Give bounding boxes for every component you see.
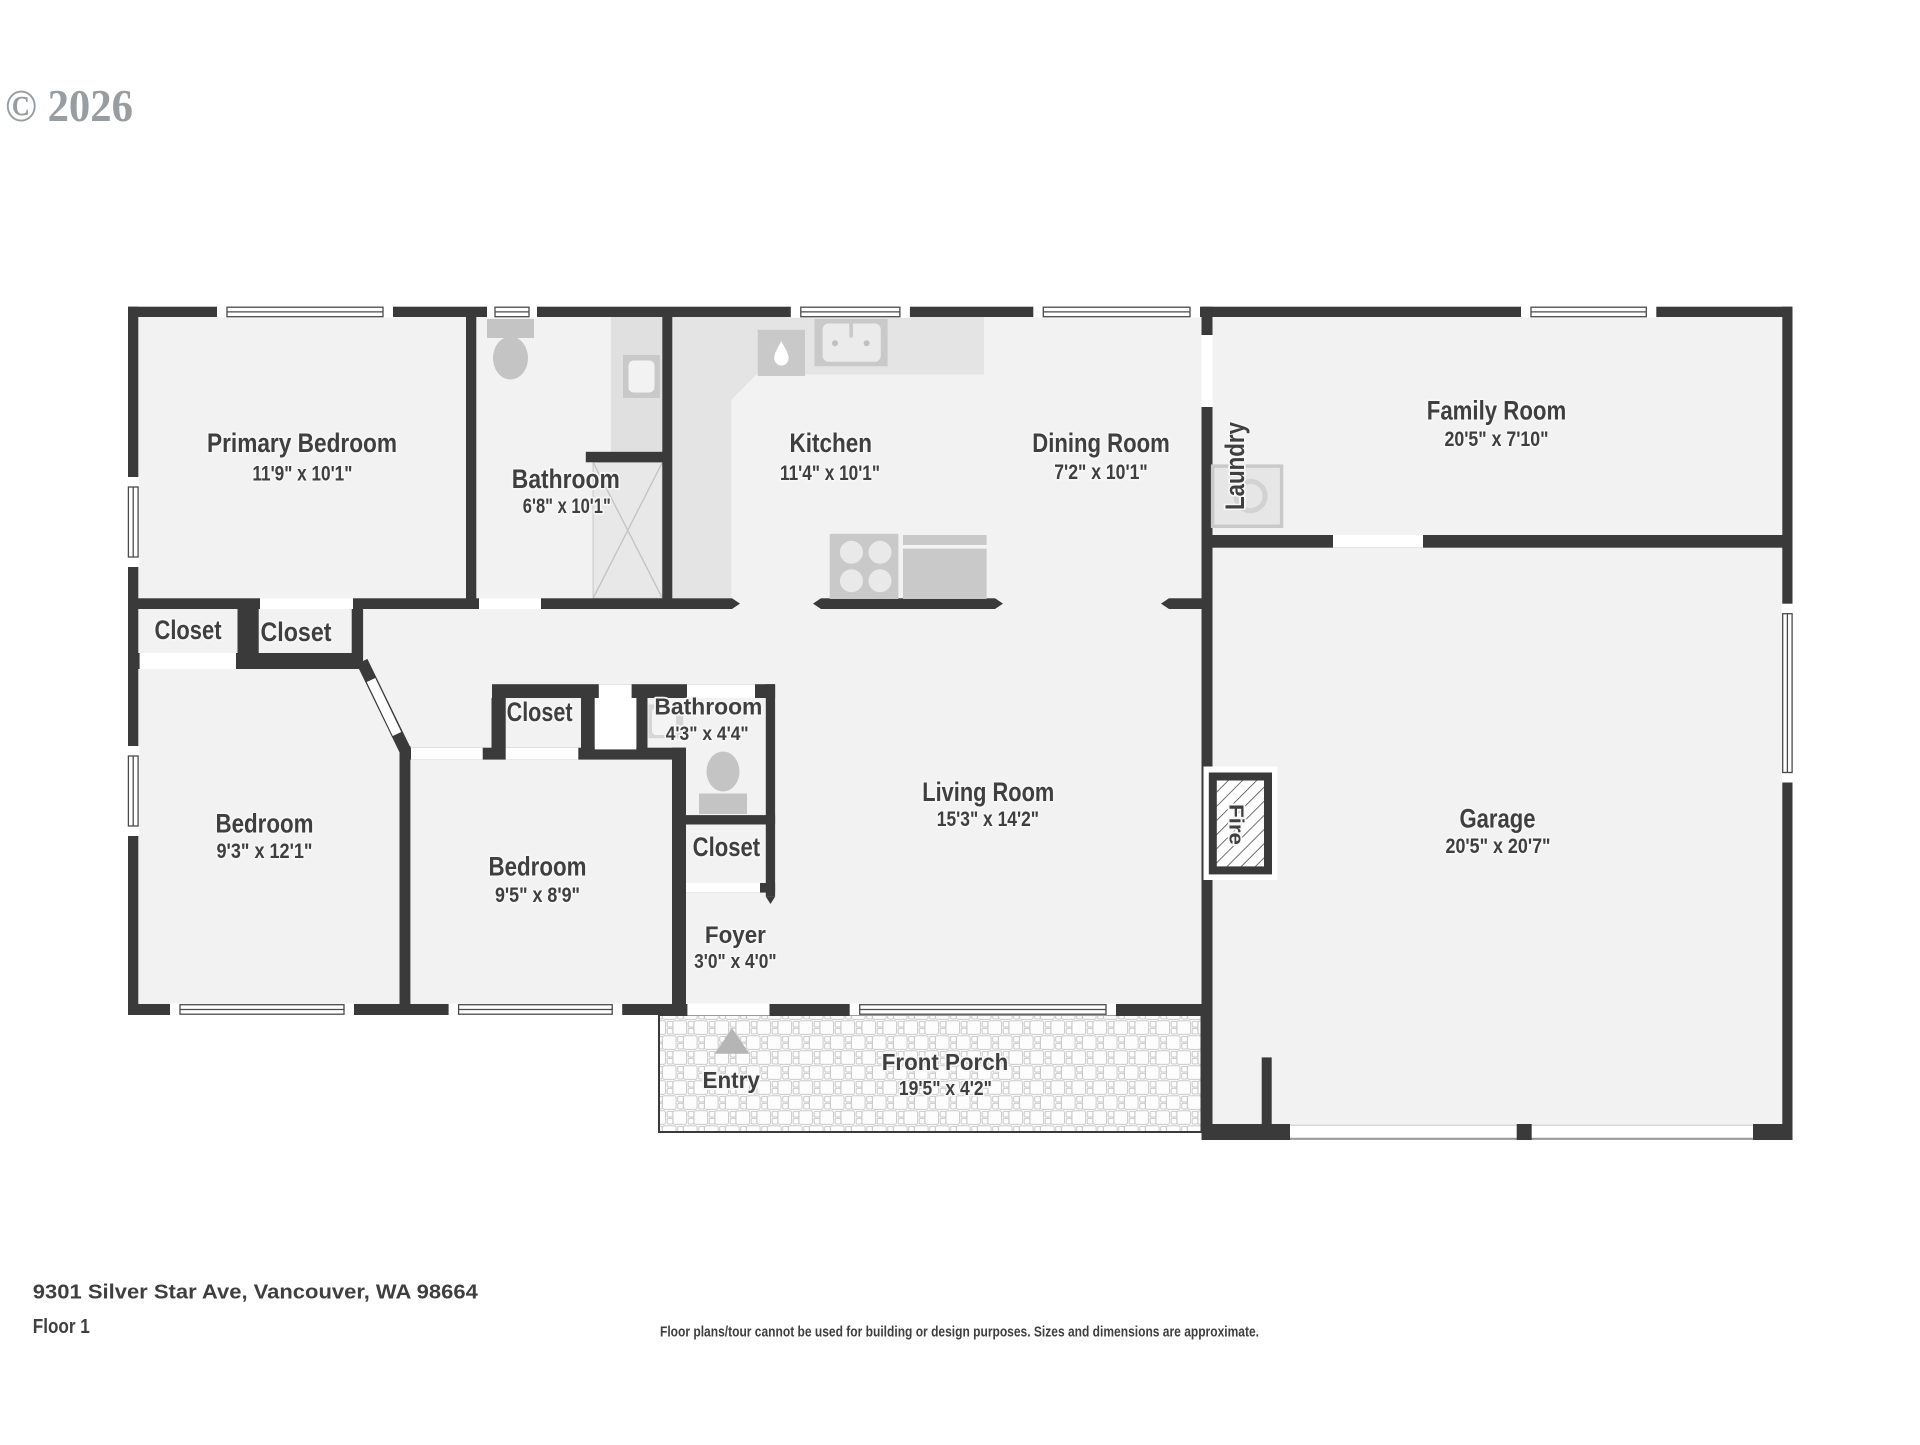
- svg-text:9301 Silver Star Ave, Vancouve: 9301 Silver Star Ave, Vancouver, WA 9866…: [33, 1282, 479, 1304]
- svg-text:20'5" x 20'7": 20'5" x 20'7": [1446, 835, 1551, 858]
- svg-text:20'5" x 7'10": 20'5" x 7'10": [1445, 428, 1549, 451]
- svg-text:15'3" x 14'2": 15'3" x 14'2": [937, 808, 1039, 831]
- svg-text:Foyer: Foyer: [705, 922, 766, 949]
- svg-text:11'4" x 10'1": 11'4" x 10'1": [780, 462, 880, 485]
- svg-text:Closet: Closet: [261, 617, 332, 647]
- svg-text:Bathroom: Bathroom: [512, 464, 620, 494]
- svg-text:Floor 1: Floor 1: [33, 1316, 90, 1338]
- svg-text:Laundry: Laundry: [1220, 422, 1250, 510]
- svg-text:Family Room: Family Room: [1427, 396, 1567, 426]
- svg-text:Fire: Fire: [1225, 804, 1247, 845]
- svg-text:© 2026: © 2026: [5, 80, 133, 131]
- svg-text:Floor plans/tour cannot be use: Floor plans/tour cannot be used for buil…: [660, 1324, 1259, 1341]
- svg-text:19'5" x 4'2": 19'5" x 4'2": [899, 1077, 992, 1100]
- svg-text:7'2" x 10'1": 7'2" x 10'1": [1054, 461, 1148, 484]
- svg-text:Garage: Garage: [1460, 804, 1536, 834]
- svg-text:Front Porch: Front Porch: [882, 1049, 1009, 1075]
- svg-text:4'3" x 4'4": 4'3" x 4'4": [666, 723, 749, 745]
- svg-text:Closet: Closet: [693, 832, 761, 862]
- svg-text:Bedroom: Bedroom: [216, 809, 314, 839]
- svg-text:Dining Room: Dining Room: [1032, 428, 1170, 458]
- svg-text:Entry: Entry: [702, 1067, 760, 1093]
- svg-text:9'3" x 12'1": 9'3" x 12'1": [217, 840, 313, 863]
- svg-text:Living Room: Living Room: [922, 777, 1054, 807]
- svg-text:Primary Bedroom: Primary Bedroom: [207, 428, 397, 458]
- svg-text:6'8" x 10'1": 6'8" x 10'1": [523, 495, 611, 518]
- svg-text:3'0" x 4'0": 3'0" x 4'0": [694, 951, 777, 973]
- svg-text:Bathroom: Bathroom: [654, 694, 762, 720]
- svg-text:Bedroom: Bedroom: [489, 852, 587, 882]
- svg-text:11'9" x 10'1": 11'9" x 10'1": [252, 462, 352, 485]
- svg-text:9'5" x 8'9": 9'5" x 8'9": [495, 884, 580, 907]
- svg-text:Closet: Closet: [507, 697, 573, 727]
- svg-text:Closet: Closet: [155, 615, 222, 645]
- svg-text:Kitchen: Kitchen: [790, 428, 873, 458]
